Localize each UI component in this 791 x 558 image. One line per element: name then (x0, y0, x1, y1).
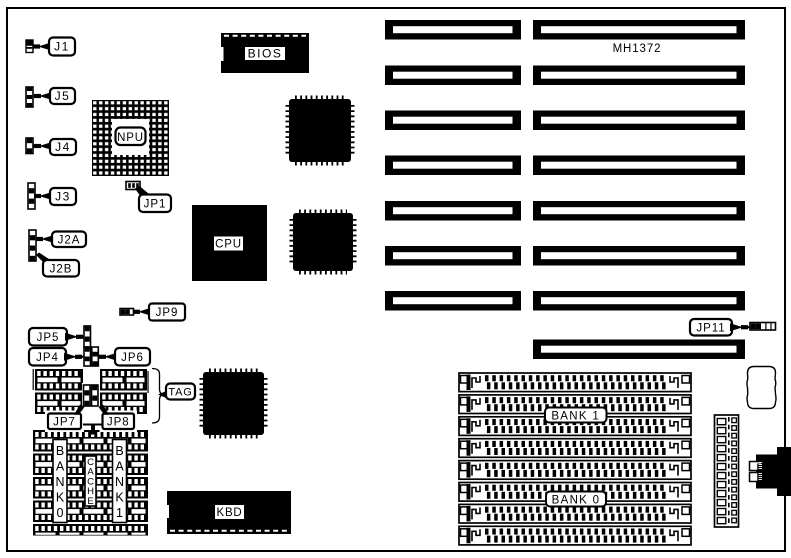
svg-text:N: N (115, 475, 124, 489)
svg-text:1: 1 (116, 506, 123, 520)
svg-text:MH1372: MH1372 (613, 43, 662, 55)
svg-text:JP1: JP1 (144, 198, 167, 210)
svg-text:J1: J1 (54, 40, 70, 54)
svg-text:A: A (115, 460, 124, 474)
svg-text:E: E (87, 496, 93, 507)
svg-text:BANK 1: BANK 1 (551, 410, 600, 422)
svg-text:A: A (56, 460, 65, 474)
svg-text:JP5: JP5 (37, 332, 60, 344)
svg-text:B: B (115, 444, 123, 458)
svg-text:JP8: JP8 (107, 416, 130, 428)
svg-text:CPU: CPU (215, 239, 242, 251)
svg-text:BANK 0: BANK 0 (552, 494, 601, 506)
svg-text:BIOS: BIOS (248, 47, 283, 61)
svg-text:JP4: JP4 (36, 352, 59, 364)
svg-text:TAG: TAG (168, 387, 192, 399)
svg-text:N: N (55, 475, 64, 489)
svg-text:J3: J3 (55, 190, 71, 204)
svg-text:NPU: NPU (117, 132, 144, 144)
svg-text:JP11: JP11 (696, 322, 725, 334)
svg-text:J5: J5 (55, 89, 71, 103)
svg-text:B: B (56, 444, 64, 458)
svg-text:JP7: JP7 (53, 416, 76, 428)
svg-text:K: K (56, 491, 65, 505)
svg-text:J2A: J2A (58, 234, 81, 246)
svg-text:KBD: KBD (216, 507, 242, 519)
svg-text:K: K (115, 491, 124, 505)
svg-text:0: 0 (57, 506, 64, 520)
svg-text:JP6: JP6 (121, 352, 144, 364)
svg-text:J4: J4 (55, 140, 71, 154)
svg-text:JP9: JP9 (156, 307, 179, 319)
svg-text:J2B: J2B (50, 263, 73, 275)
